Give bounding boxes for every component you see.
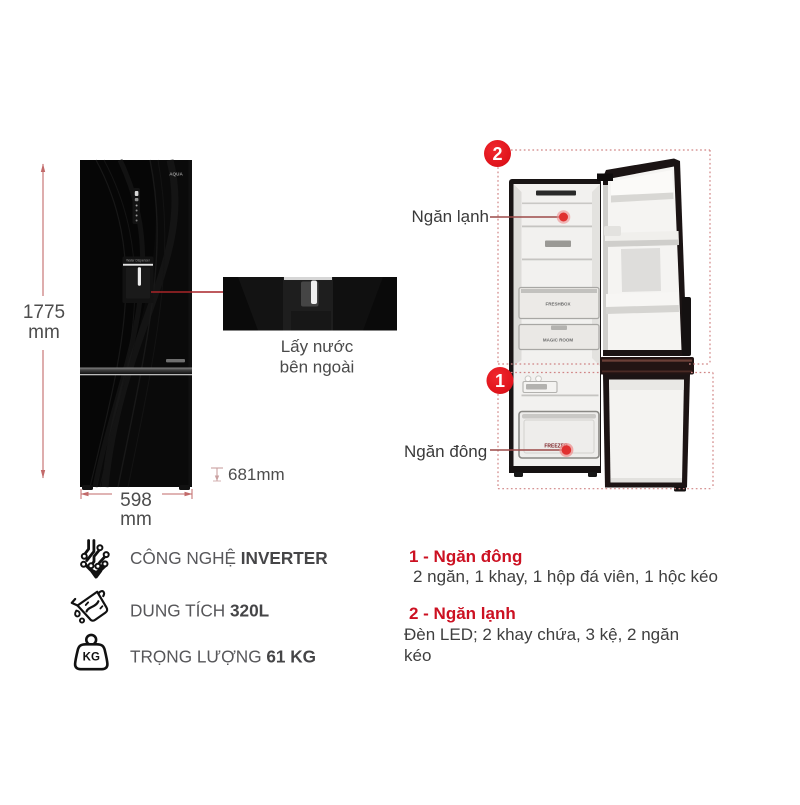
svg-text:Lấy nước: Lấy nước — [281, 337, 354, 356]
svg-text:DUNG TÍCH 320L: DUNG TÍCH 320L — [130, 601, 269, 621]
svg-text:2: 2 — [492, 144, 502, 164]
svg-text:2 ngăn, 1 khay, 1 hộp đá viên,: 2 ngăn, 1 khay, 1 hộp đá viên, 1 hộc kéo — [413, 567, 718, 586]
svg-text:TRỌNG LƯỢNG 61 KG: TRỌNG LƯỢNG 61 KG — [130, 647, 316, 667]
svg-text:598: 598 — [120, 490, 152, 511]
svg-text:MAGIC ROOM: MAGIC ROOM — [543, 338, 573, 343]
svg-text:KG: KG — [83, 652, 100, 664]
svg-text:AQUA: AQUA — [169, 172, 183, 177]
svg-text:CÔNG NGHỆ INVERTER: CÔNG NGHỆ INVERTER — [130, 548, 328, 568]
svg-text:Ngăn lạnh: Ngăn lạnh — [412, 207, 490, 226]
svg-text:mm: mm — [120, 509, 152, 530]
svg-text:Water Dispenser: Water Dispenser — [126, 259, 151, 263]
svg-text:1 - Ngăn đông: 1 - Ngăn đông — [409, 547, 522, 566]
svg-text:kéo: kéo — [404, 646, 431, 665]
svg-text:mm: mm — [28, 322, 60, 343]
svg-text:1: 1 — [495, 371, 505, 391]
svg-text:FRESHBOX: FRESHBOX — [545, 302, 570, 307]
svg-text:Đèn LED; 2 khay chứa, 3 kệ, 2: Đèn LED; 2 khay chứa, 3 kệ, 2 ngăn — [404, 625, 679, 644]
svg-text:Ngăn đông: Ngăn đông — [404, 442, 487, 461]
svg-text:bên ngoài: bên ngoài — [280, 358, 355, 377]
svg-text:1775: 1775 — [23, 302, 65, 323]
svg-text:681mm: 681mm — [228, 465, 285, 484]
svg-text:2 - Ngăn lạnh: 2 - Ngăn lạnh — [409, 604, 516, 623]
